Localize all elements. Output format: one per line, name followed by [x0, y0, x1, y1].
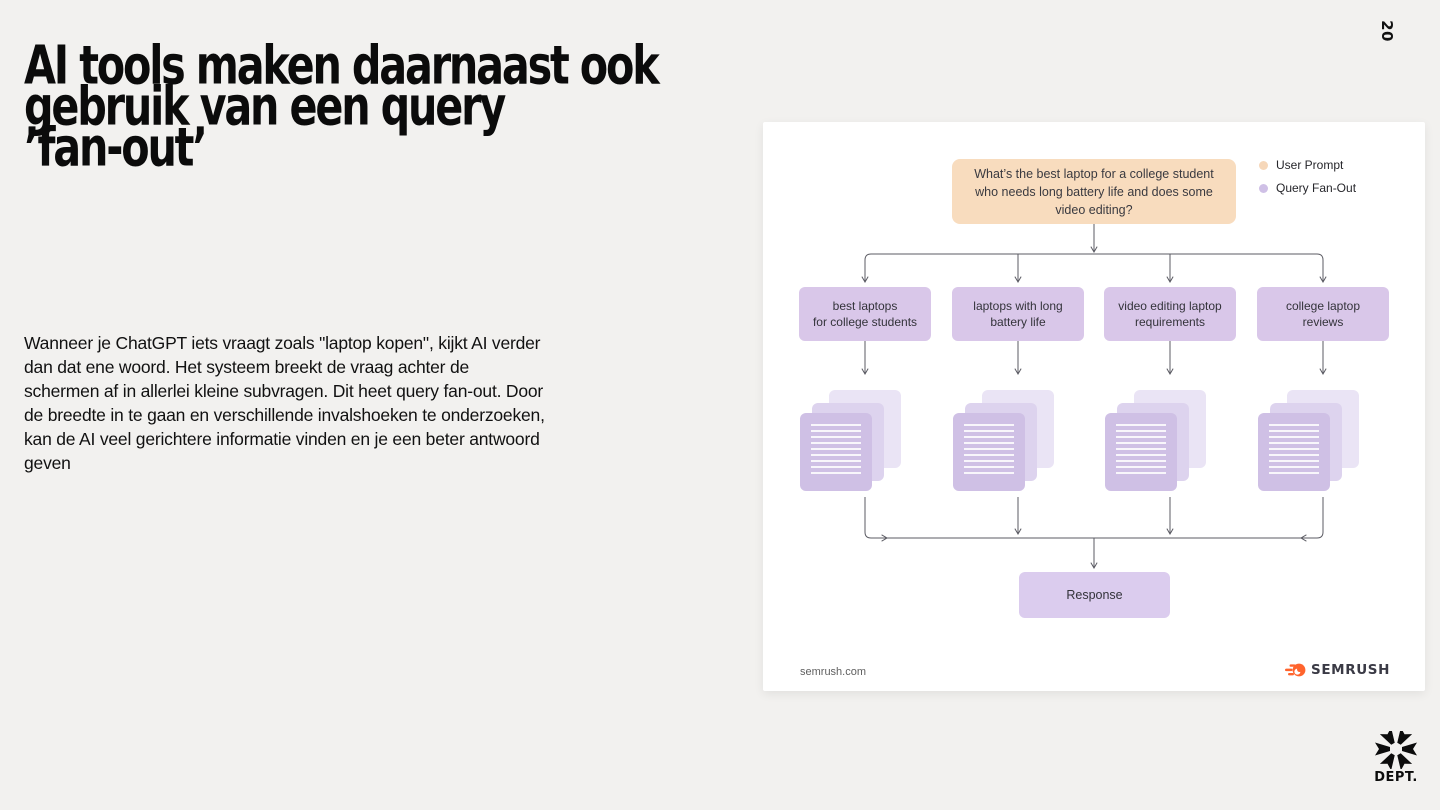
query-box-college-students: best laptops for college students [799, 287, 931, 341]
body-paragraph: Wanneer je ChatGPT iets vraagt zoals "la… [24, 331, 664, 475]
semrush-logo: SEMRUSH [1285, 660, 1390, 680]
legend-item-user-prompt: User Prompt [1259, 158, 1356, 172]
diagram-card: What’s the best laptop for a college stu… [763, 122, 1425, 691]
slide: 20 AI tools maken daarnaast ook gebruik … [0, 0, 1440, 810]
query-box-battery-life: laptops with long battery life [952, 287, 1084, 341]
page-number: 20 [1378, 16, 1396, 46]
query-box-laptop-reviews: college laptop reviews [1257, 287, 1389, 341]
semrush-icon [1285, 660, 1306, 680]
document-stack-icon [1258, 390, 1359, 491]
dept-asterisk-icon [1373, 731, 1419, 769]
query-box-video-editing: video editing laptop requirements [1104, 287, 1236, 341]
document-stack-icon [800, 390, 901, 491]
page-title: AI tools maken daarnaast ook gebruik van… [24, 46, 728, 169]
document-stack-icon [1105, 390, 1206, 491]
legend-label: Query Fan-Out [1276, 181, 1356, 195]
source-url: semrush.com [800, 666, 866, 678]
dept-wordmark: DEPT. [1374, 770, 1418, 785]
legend: User Prompt Query Fan-Out [1259, 158, 1356, 195]
query-fanout-dot-icon [1259, 184, 1268, 193]
document-stack-icon [953, 390, 1054, 491]
user-prompt-dot-icon [1259, 161, 1268, 170]
legend-label: User Prompt [1276, 158, 1343, 172]
semrush-wordmark: SEMRUSH [1311, 662, 1390, 678]
response-box: Response [1019, 572, 1170, 618]
user-prompt-box: What’s the best laptop for a college stu… [952, 159, 1236, 224]
dept-logo: DEPT. [1373, 731, 1419, 785]
legend-item-query-fanout: Query Fan-Out [1259, 181, 1356, 195]
